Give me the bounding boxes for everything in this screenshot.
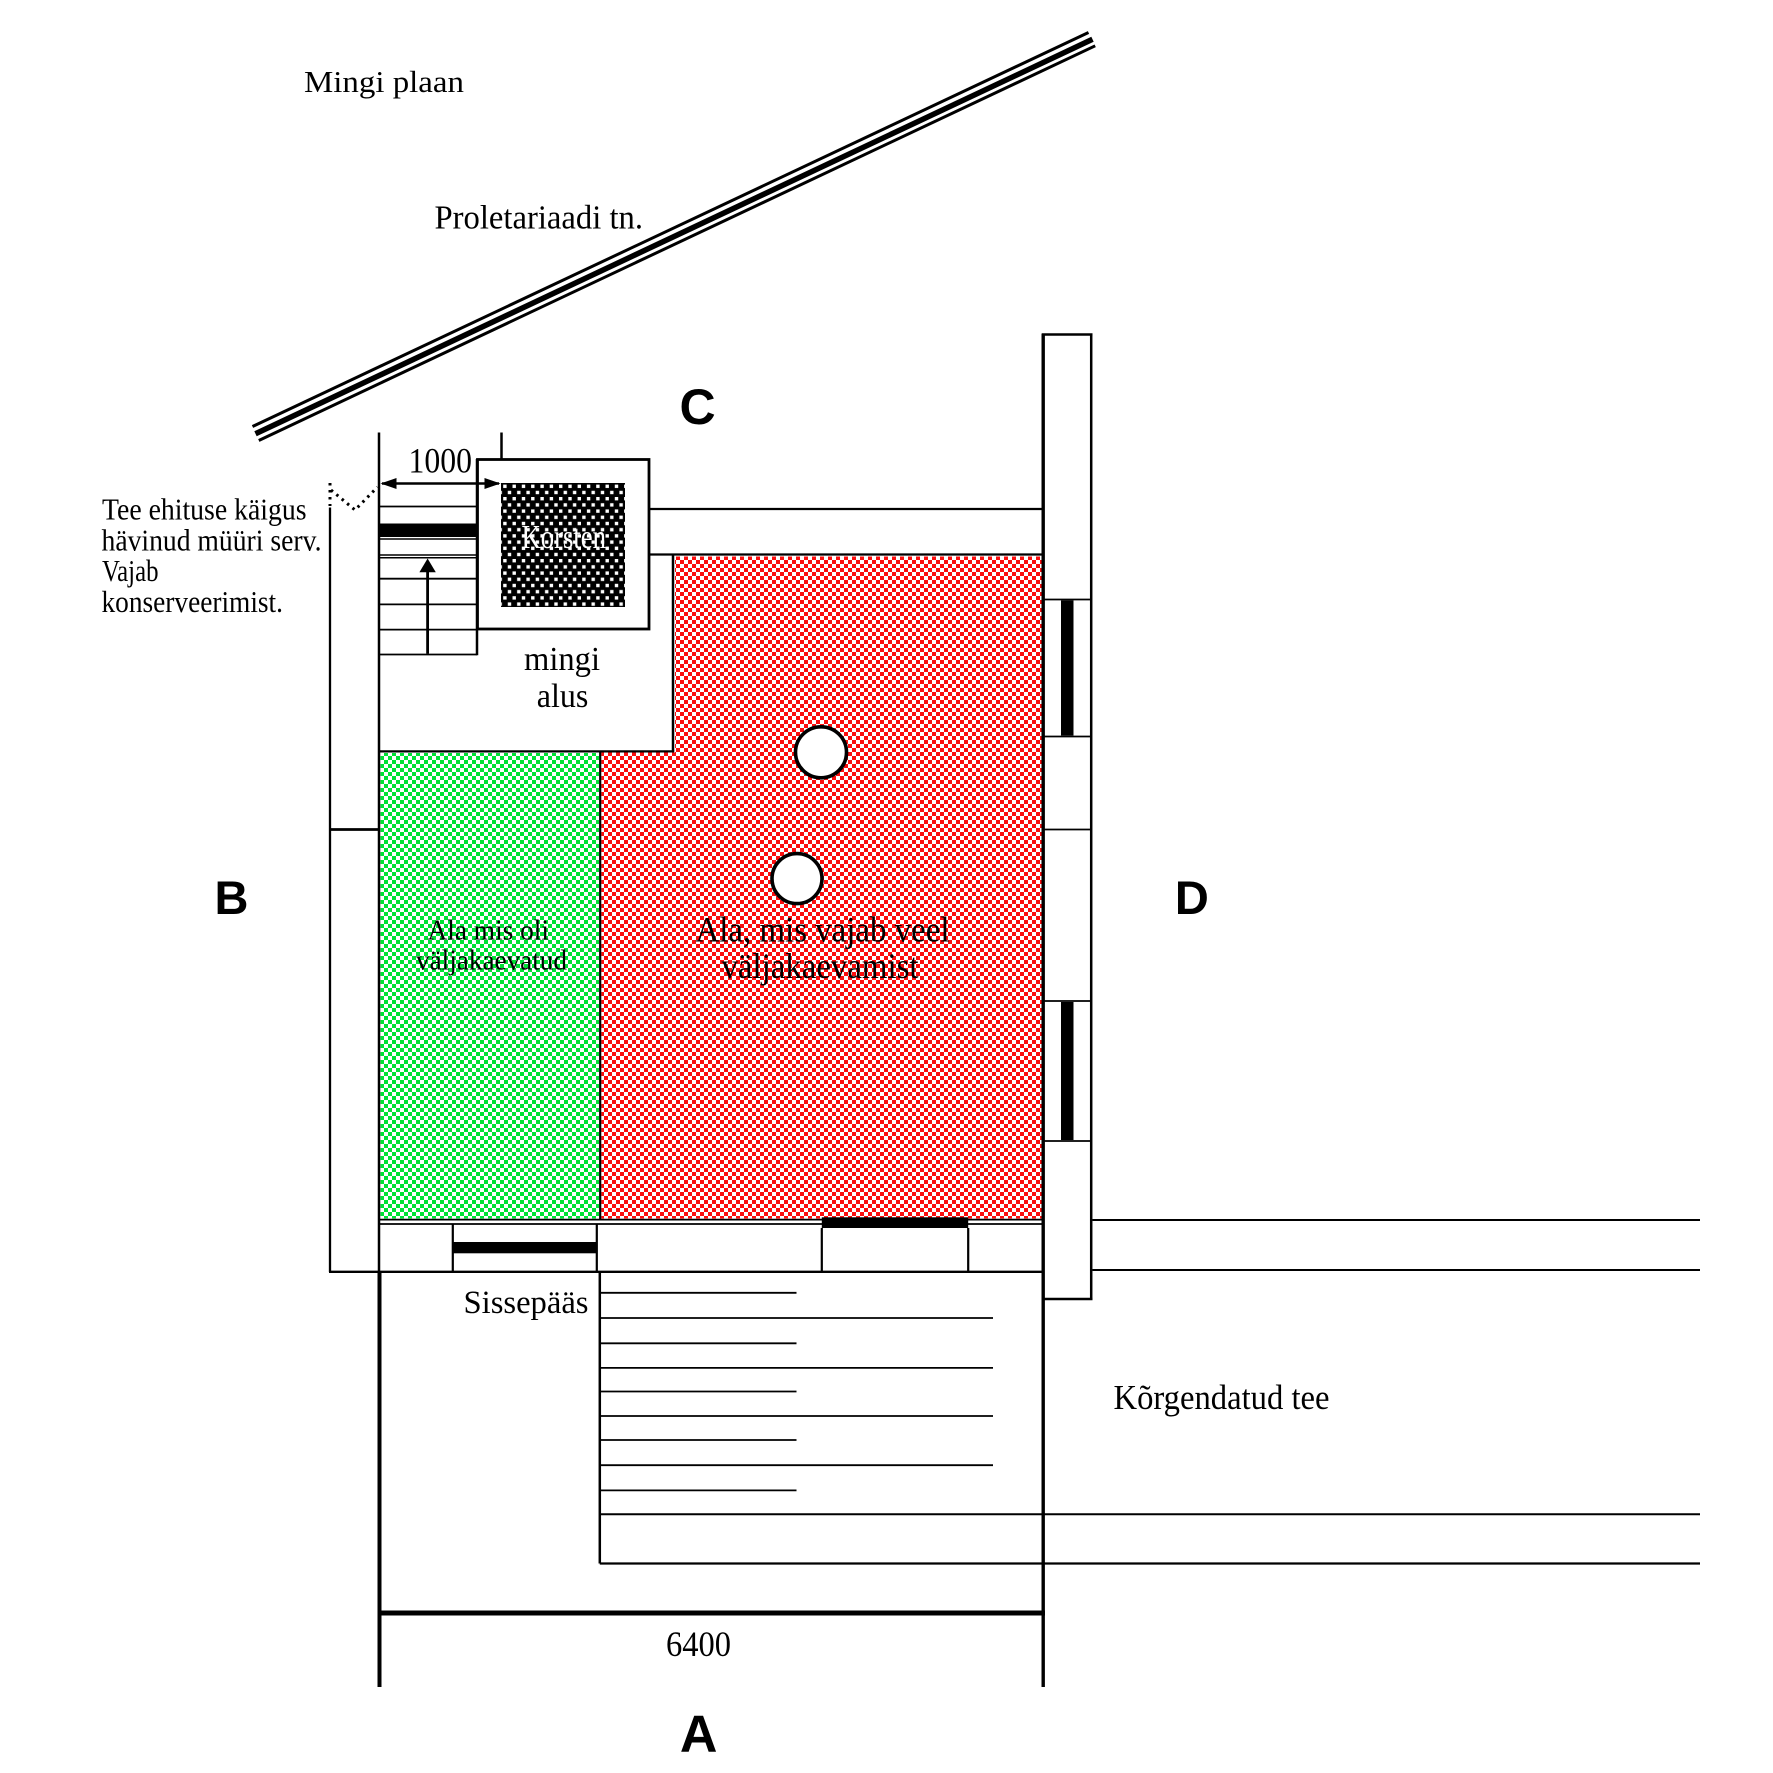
svg-text:Vajab: Vajab bbox=[102, 553, 159, 588]
svg-text:mingi: mingi bbox=[524, 641, 600, 678]
svg-text:Sissepääs: Sissepääs bbox=[464, 1285, 589, 1321]
svg-text:Proletariaadi tn.: Proletariaadi tn. bbox=[435, 199, 644, 236]
svg-text:B: B bbox=[215, 871, 249, 924]
svg-text:1000: 1000 bbox=[409, 441, 473, 481]
svg-text:väljakaevamist: väljakaevamist bbox=[722, 946, 919, 986]
svg-text:D: D bbox=[1175, 871, 1209, 924]
svg-text:Kõrgendatud tee: Kõrgendatud tee bbox=[1114, 1379, 1330, 1417]
svg-text:Ala, mis vajab veel: Ala, mis vajab veel bbox=[696, 910, 950, 950]
svg-text:C: C bbox=[679, 379, 715, 435]
svg-text:väljakaevatud: väljakaevatud bbox=[416, 944, 567, 976]
svg-text:Ala mis oli: Ala mis oli bbox=[428, 914, 550, 946]
svg-text:Mingi plaan: Mingi plaan bbox=[304, 65, 464, 99]
svg-text:Tee ehituse käigus: Tee ehituse käigus bbox=[102, 492, 307, 527]
svg-text:konserveerimist.: konserveerimist. bbox=[102, 584, 284, 619]
svg-text:A: A bbox=[680, 1705, 718, 1763]
svg-text:6400: 6400 bbox=[666, 1624, 731, 1664]
svg-text:alus: alus bbox=[537, 678, 589, 715]
svg-text:Korsten: Korsten bbox=[522, 519, 607, 556]
